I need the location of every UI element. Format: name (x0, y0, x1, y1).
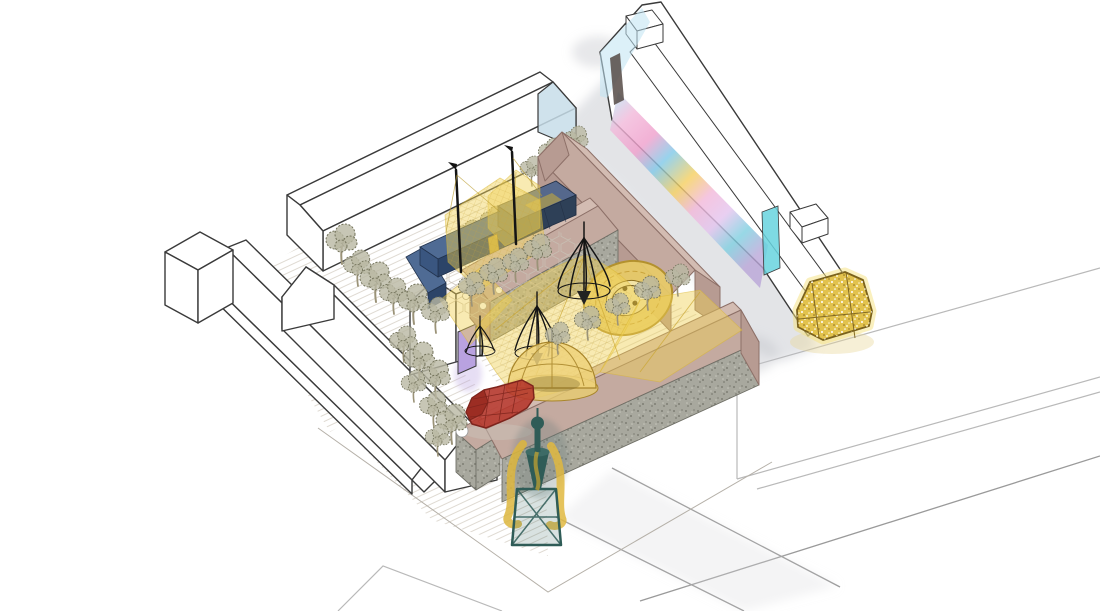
cyan-glass-end (762, 206, 780, 275)
site-axonometric-illustration (0, 0, 1100, 611)
tower-frame (512, 489, 561, 545)
outline-block-bottom-left (338, 566, 502, 611)
illustration-stage (0, 0, 1100, 611)
corner-tower-block (165, 232, 233, 323)
